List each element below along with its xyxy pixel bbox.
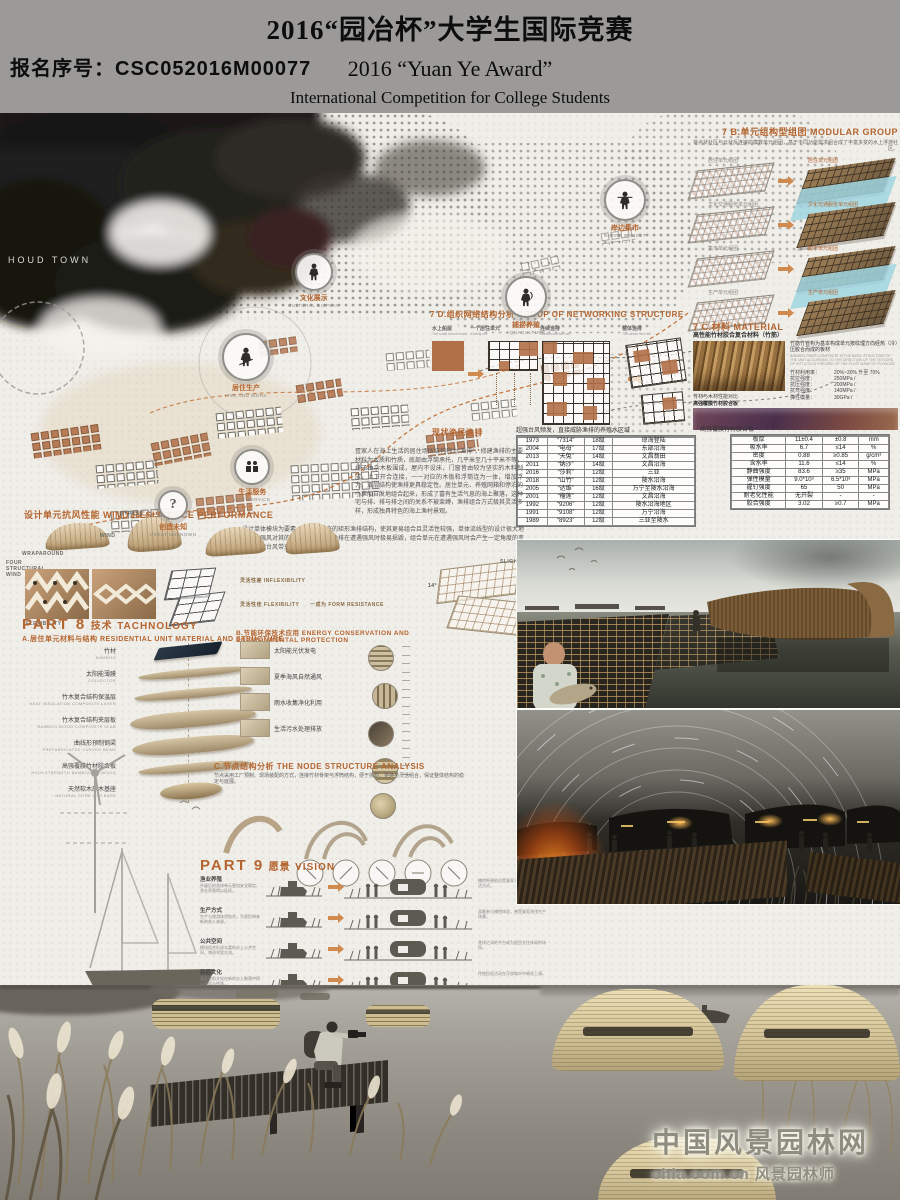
item-label-en: The small house boats — [432, 332, 467, 336]
dan-family-paragraph: 疍家人在海上生活的居住场所结构称为“渔排”，修建渔排的主要材料为木质和竹质，底部… — [355, 448, 523, 516]
cell-place: 陵水沿海地区 — [613, 502, 695, 510]
plywood-row: 密度 0.88 ≥0.85 g/cm³ — [732, 453, 889, 461]
typhoon-row: 1991 “9108” 12级 万宁沿海 — [518, 510, 695, 518]
legend-line — [496, 373, 497, 405]
cell-index: 板厚 — [732, 437, 786, 445]
floating-hut-large-2 — [734, 985, 900, 1081]
cell-name: “电母” — [547, 446, 584, 454]
label-en: BAMBOO — [16, 655, 116, 660]
weaving-photo-2 — [92, 569, 156, 619]
marker-label-en: LIVE AND WORK — [222, 393, 270, 398]
cell-wind: 12级 — [584, 518, 613, 526]
modular-row: 居住单元组团 居住单元组团 — [690, 157, 898, 200]
continuous-raft-grid — [542, 341, 610, 425]
eco-diagram — [240, 693, 270, 711]
subtitle-english: 2016 “Yuan Ye Award” — [0, 56, 900, 82]
cell-unit: MPa — [859, 469, 889, 477]
cell-unit: % — [859, 445, 889, 453]
typhoon-row: 1989 “8923” 12级 三亚至陵水 — [518, 518, 695, 526]
watermark-cn: 中国风景园林网 — [652, 1121, 900, 1161]
vision-text: 渔业养殖 升级后的渔排单元更加安全稳定，渔业养殖得以延续。 — [200, 875, 260, 893]
cell-index: 吸水率 — [732, 445, 786, 453]
cell-standard: ≤14 — [822, 445, 859, 453]
part9-code: PART 9 — [200, 857, 264, 874]
cell-place: 万宁沿海 — [613, 510, 695, 518]
bottom-photo: 中国风景园林网 chla.com.cn 风景园林师 — [0, 985, 900, 1200]
cell-value: 9.0*10³ — [786, 477, 823, 485]
cell-name: “莎莉” — [547, 470, 584, 478]
cell-index: 静曲强度 — [732, 469, 786, 477]
component-label — [402, 652, 482, 661]
module-plan-diagram — [687, 162, 774, 199]
module-label-plan: 文化交通服务单元组团 — [708, 201, 758, 208]
part9-en: VISION — [295, 862, 335, 873]
cell-standard: 6.5*10³ — [822, 477, 859, 485]
plywood-row: 含水率 11.6 ≤14 % — [732, 461, 889, 469]
marker-label-en: CULTURAL DISPLAY — [288, 303, 339, 308]
terracotta-cell — [583, 406, 597, 420]
whole-raft-grid-2 — [641, 391, 685, 425]
after-scene — [344, 906, 472, 932]
eco-diagram — [240, 641, 270, 659]
vision-label: 公共空间 — [200, 937, 260, 945]
terracotta-cell — [587, 378, 605, 390]
eco-label: 雨水收集净化利用 — [274, 698, 322, 707]
plywood-table-title: 高强覆膜竹材胶合板 — [700, 424, 898, 433]
cell-name: “山竹” — [547, 478, 584, 486]
typhoon-row: 2005 “达维” 16级 万宁至陵水沿海 — [518, 486, 695, 494]
vision-label: 生产方式 — [200, 906, 260, 914]
cell-wind: 12级 — [584, 470, 613, 478]
transform-arrow-icon — [778, 267, 788, 271]
cell-unit: mm — [859, 437, 889, 445]
terracotta-cell — [519, 342, 538, 356]
component-label — [402, 686, 482, 695]
vision-desc: 模块组合形成丰富的水上公共空间，增进邻里交流。 — [200, 945, 260, 955]
cell-wind: 14级 — [584, 454, 613, 462]
plywood-row: 吸水率 6.7 ≤14 % — [732, 445, 889, 453]
transform-arrow-icon — [778, 311, 788, 315]
component-label — [402, 677, 482, 686]
poster-board: HOUD TOWN 文化展示 CULTURAL DISPLAY 居住生产 LIV… — [0, 113, 900, 1200]
cell-standard: ≥0.7 — [822, 501, 859, 509]
competition-poster: 2016“园冶杯”大学生国际竞赛 报名序号：CSC052016M00077 20… — [0, 0, 900, 1200]
material-desc-cn: 竹筋竹管构为基本构成单元按纹理方向经热（冷）压胶合而成的板材 — [790, 341, 898, 354]
composite-hull-slab — [130, 706, 257, 733]
inflexible-label: 灵活性差 INFLEXIBILITY — [240, 577, 305, 584]
cell-value: 3.02 — [786, 501, 823, 509]
map-marker-shore-market: 岸边集市 SHORE MARKET — [604, 179, 646, 238]
component-label — [402, 669, 482, 678]
cell-place: 三亚 — [613, 470, 695, 478]
eco-diagram — [240, 719, 270, 737]
part8-b-items: 太阳能光伏发电 夏季海风自然通风 雨水收集净化利用 生活污水处理排放 — [240, 641, 390, 745]
vision-arrow-icon — [328, 885, 338, 889]
arrow-icon — [468, 372, 478, 376]
modular-rows: 居住单元组团 居住单元组团 文化交通服务单元组团 文化交通服务单元组团 集市单元… — [690, 157, 898, 332]
module-label-axon: 集市单元组团 — [808, 245, 838, 252]
section-network-structure: 7 D.组织网络结构分析 GROUP OF NETWORKING STRUCTU… — [430, 309, 698, 444]
modular-row: 文化交通服务单元组团 文化交通服务单元组团 — [690, 201, 898, 244]
module-axon-diagram — [796, 245, 896, 291]
cell-standard: ≤14 — [822, 461, 859, 469]
vision-row: 生产方式 生产与旅游体验结合，为渔民带来新的收入来源。 — [200, 906, 575, 932]
marker-ring — [234, 449, 270, 485]
material-subtitle: 高性能竹材胶合复合材料（竹筋） — [693, 333, 898, 341]
cell-wind: 14级 — [584, 462, 613, 470]
cell-wind: 12级 — [584, 502, 613, 510]
hut-window-slot — [583, 1027, 693, 1036]
marker-label-cn: 捕捞养殖 — [505, 320, 547, 330]
part8-cn: 技术 — [91, 621, 113, 632]
module-label-axon: 生产单元组团 — [808, 289, 838, 296]
cell-standard: ≥0.85 — [822, 453, 859, 461]
site-watermark: 中国风景园林网 chla.com.cn 风景园林师 — [652, 1121, 900, 1184]
cell-wind: 16级 — [584, 486, 613, 494]
label-cn: 太阳能薄膜 — [16, 669, 116, 678]
module-label-plan: 集市单元组团 — [708, 245, 738, 252]
material-text: 竹筋竹管构为基本构成单元按纹理方向经热（冷）压胶合而成的板材 BAMBOO FI… — [790, 341, 898, 401]
plywood-row: 弹性模量 9.0*10³ 6.5*10³ MPa — [732, 477, 889, 485]
form-resistance-label: 一成为 FORM RESISTANCE — [310, 601, 384, 608]
cell-name: “天兔” — [547, 454, 584, 462]
eco-label: 生活污水处理排放 — [274, 724, 322, 733]
section-title: 7 D.组织网络结构分析 GROUP OF NETWORKING STRUCTU… — [430, 309, 698, 320]
map-marker-live-work: 居住生产 LIVE AND WORK — [222, 333, 270, 398]
cell-value: 11.6 — [786, 461, 823, 469]
part8-code: PART 8 — [22, 616, 86, 633]
cell-year: 1989 — [518, 518, 548, 526]
vision-label: 渔业养殖 — [200, 875, 260, 883]
plywood-row: 静曲强度 83.6 ≥35 MPa — [732, 469, 889, 477]
marker-ring — [222, 333, 270, 381]
plywood-table-body: 板厚 11±0.4 ±0.8 mm 吸水率 6.7 ≤14 % 密度 0.88 — [732, 437, 889, 509]
bamboo-photo — [693, 341, 785, 391]
before-scene — [266, 875, 322, 899]
plywood-row: 板厚 11±0.4 ±0.8 mm — [732, 437, 889, 445]
typhoon-row: 2001 “榴莲” 12级 文昌沿海 — [518, 494, 695, 502]
cell-place: 文昌沿海 — [613, 462, 695, 470]
cell-unit: % — [859, 461, 889, 469]
marker-label-en: SHORE MARKET — [604, 233, 646, 238]
marker-label-en: AQUACULTURE — [505, 330, 547, 335]
cell-standard: 50 — [822, 485, 859, 493]
day-rendering — [517, 540, 900, 708]
material-props: 竹材利用率： 20%~30% 升至 70% 抗拉强度： 250MPa / 抗压强… — [790, 370, 898, 401]
typhoon-row: 1992 “9206” 12级 陵水沿海地区 — [518, 502, 695, 510]
label-cn: 竹木复合结构夹层板 — [16, 715, 116, 724]
cell-value: 11±0.4 — [786, 437, 823, 445]
material-desc-en: BAMBOO FIBER COMPOSITE IS THE BASIC STRU… — [790, 354, 898, 367]
cell-unit: MPa — [859, 477, 889, 485]
cell-index: 密度 — [732, 453, 786, 461]
terracotta-cell — [573, 352, 593, 364]
module-plan-diagram — [687, 250, 774, 287]
cell-place: 万宁至陵水沿海 — [613, 486, 695, 494]
page-title: 2016“园冶杯”大学生国际竞赛 — [0, 8, 900, 47]
map-marker-aquaculture: 捕捞养殖 AQUACULTURE — [505, 276, 547, 335]
material-prop-row: 弹性模量： 30GPa / — [790, 395, 898, 401]
module-label-plan: 居住单元组团 — [708, 157, 738, 164]
eco-label: 夏季海风自然通风 — [274, 672, 322, 681]
eco-feature: 太阳能光伏发电 — [240, 641, 390, 659]
cell-index: 弹性模量 — [732, 477, 786, 485]
transform-arrow-icon — [778, 179, 788, 183]
material-note: 竹材与木材性能对比 — [693, 394, 738, 400]
before-scene — [266, 906, 322, 930]
label-en: HEAT INSULATION COMPOSITE LAYER — [16, 701, 116, 706]
item-label-en: The whole fish raft — [622, 332, 651, 336]
module-design-paragraph: 设计单体模块为要素，改变了原来的矩形渔排结构，使其更易组合且灵活性较强，单体流线… — [242, 526, 524, 553]
label-en: COLLECTOR — [16, 678, 116, 683]
cell-name: “纳沙” — [547, 462, 584, 470]
floating-hut-large-1 — [552, 989, 724, 1071]
component-label — [402, 737, 482, 746]
watermark-url: chla.com.cn 风景园林师 — [652, 1163, 900, 1184]
eco-feature: 雨水收集净化利用 — [240, 693, 390, 711]
marker-label-cn: 创造未知 — [150, 522, 196, 532]
cell-name: “9206” — [547, 502, 584, 510]
board-label: 高强覆膜竹材胶合板 — [693, 401, 738, 407]
part8-right-labels — [402, 643, 482, 779]
marker-label-en: CREAT UNKNOWN — [150, 532, 196, 537]
cell-unit: - — [859, 493, 889, 501]
legend-line — [514, 373, 515, 405]
vision-row: 公共空间 模块组合形成丰富的水上公共空间，增进邻里交流。 — [200, 937, 575, 963]
vision-desc-right: 渔排之间的平台成为居民交往休闲的场所。 — [478, 937, 548, 950]
cell-place: 东部沿海 — [613, 446, 695, 454]
question-mark-icon: ? — [170, 497, 177, 513]
after-scene — [344, 875, 472, 901]
typhoon-row: 2011 “纳沙” 14级 文昌沿海 — [518, 462, 695, 470]
lantern-glow — [757, 814, 783, 828]
person-icon — [307, 263, 321, 281]
vision-text: 公共空间 模块组合形成丰富的水上公共空间，增进邻里交流。 — [200, 937, 260, 955]
section-desc: 将点状社区与云状反连接的模数单元组团，基于不同功能需求组合成了丰富多变的水上浮游… — [690, 140, 898, 153]
typhoon-row: 2004 “电母” 17级 东部沿海 — [518, 446, 695, 454]
item-label-en: A living cell — [470, 332, 487, 336]
wraparound-label: WRAPAROUND — [22, 551, 64, 557]
part8-en: TACHNOLOGY — [117, 621, 197, 632]
marker-label-cn: 居住生产 — [222, 383, 270, 393]
plywood-row: 握钉强度 65 50 MPa — [732, 485, 889, 493]
person-carrying-icon — [617, 191, 633, 210]
part8-c-title: C 节点结构分析 THE NODE STRUCTURE ANALYSIS — [214, 761, 425, 772]
subtitle-line2: International Competition for College St… — [0, 88, 900, 108]
material-label: 太阳能薄膜 COLLECTOR — [16, 669, 116, 683]
module-axon-diagram — [796, 201, 896, 247]
eco-feature: 生活污水处理排放 — [240, 719, 390, 737]
membrane-slab — [138, 664, 248, 682]
terracotta-cell — [661, 359, 679, 375]
label-en: BAMBOO-WOOD COMPOSITE SLAB — [16, 724, 116, 729]
lantern-glow — [817, 812, 843, 826]
angle-label: 14° — [428, 583, 437, 589]
plywood-table-section: 高强覆膜竹材胶合板 板厚 11±0.4 ±0.8 mm 吸水率 6.7 ≤14 — [700, 424, 898, 510]
legend-line — [530, 373, 531, 405]
map-marker-life-service: 生活服务 LIFE SERVICE — [234, 449, 270, 502]
wind-label: WIND — [100, 533, 115, 539]
section-material: 7 C.材料 MATERIAL 高性能竹材胶合复合材料（竹筋） 竹筋竹管构为基本… — [693, 320, 898, 341]
cell-place: 陵水沿海 — [613, 478, 695, 486]
cell-unit: g/cm³ — [859, 453, 889, 461]
module-label-axon: 居住单元组团 — [808, 157, 838, 164]
header: 2016“园冶杯”大学生国际竞赛 报名序号：CSC052016M00077 20… — [0, 0, 900, 113]
vision-desc-right: 游客参与捕捞体验，感受疍家渔排生产场景。 — [478, 906, 548, 919]
plywood-row: 胶合强度 3.02 ≥0.7 MPa — [732, 501, 889, 509]
cell-standard: - — [822, 493, 859, 501]
component-label — [402, 660, 482, 669]
terracotta-cell — [543, 342, 557, 354]
marker-ring — [505, 276, 547, 318]
diamond-pattern — [92, 569, 156, 619]
vision-desc-right: 传统民俗活动在浮游城市中继续上演。 — [478, 968, 548, 976]
vision-arrow-icon — [328, 947, 338, 951]
prop-key: 弹性模量： — [790, 395, 834, 401]
module-plan-diagram — [687, 206, 774, 243]
cell-value: 83.6 — [786, 469, 823, 477]
label-cn: 竹材 — [16, 646, 116, 655]
cell-name: “8923” — [547, 518, 584, 526]
component-label — [402, 703, 482, 712]
vision-arrow-icon — [328, 978, 338, 982]
cell-value: 65 — [786, 485, 823, 493]
modular-row: 集市单元组团 集市单元组团 — [690, 245, 898, 288]
cell-index: 耐老化性能 — [732, 493, 786, 501]
insulation-slab — [134, 684, 252, 703]
vision-desc: 生产与旅游体验结合，为渔民带来新的收入来源。 — [200, 914, 260, 924]
material-label: 竹材 BAMBOO — [16, 646, 116, 660]
marker-label-cn: 岸边集市 — [604, 223, 646, 233]
houseboat-block — [432, 341, 464, 371]
plywood-table: 板厚 11±0.4 ±0.8 mm 吸水率 6.7 ≤14 % 密度 0.88 — [730, 434, 890, 510]
material-label: 竹木复合结构夹层板 BAMBOO-WOOD COMPOSITE SLAB — [16, 715, 116, 729]
marker-label-cn: 文化展示 — [288, 293, 339, 303]
after-scene — [344, 937, 472, 963]
terracotta-cell — [662, 397, 677, 410]
typhoon-row: 2016 “莎莉” 12级 三亚 — [518, 470, 695, 478]
cell-wind: 12级 — [584, 478, 613, 486]
part9-title: PART 9 愿景 VISION — [200, 857, 335, 875]
hut-window-slot — [764, 1029, 870, 1038]
part9-cn: 愿景 — [269, 862, 291, 873]
cell-standard: ≥35 — [822, 469, 859, 477]
night-rendering — [517, 710, 900, 904]
part8-c-desc: 节点采用工厂预制、现场装配的方式，连接竹材骨架与浮筒结构，便于拆卸、更换与灵活组… — [214, 773, 464, 786]
cell-wind: 12级 — [584, 494, 613, 502]
cell-unit: MPa — [859, 501, 889, 509]
day-overlay — [517, 540, 900, 708]
people-icon — [244, 460, 260, 474]
cell-place: 文昌沿海 — [613, 494, 695, 502]
cell-value: 0.88 — [786, 453, 823, 461]
marker-ring: ? — [158, 490, 188, 520]
vision-arrow-icon — [328, 916, 338, 920]
typhoon-row: 2013 “天兔” 14级 文昌翁田 — [518, 454, 695, 462]
map-town-label: HOUD TOWN — [8, 255, 91, 265]
cell-name: “榴莲” — [547, 494, 584, 502]
cell-place: 文昌翁田 — [613, 454, 695, 462]
cell-index: 胶合强度 — [732, 501, 786, 509]
component-label — [402, 643, 482, 652]
terracotta-cell — [499, 361, 509, 371]
terracotta-cell — [633, 349, 651, 363]
marker-label-cn: 生活服务 — [234, 487, 270, 497]
typhoon-table: 1973 “7314” 18级 琼海登陆 2004 “电母” 17级 东部沿海 … — [516, 435, 696, 527]
typhoon-row: 2018 “山竹” 12级 陵水沿海 — [518, 478, 695, 486]
marker-label-en: LIFE SERVICE — [234, 497, 270, 502]
cell-name: “9108” — [547, 510, 584, 518]
terracotta-cell — [553, 372, 567, 386]
vision-text: 民俗文化 疍家民俗文化在新的水上聚落中得以延续与传承。 — [200, 968, 260, 986]
cell-value: 6.7 — [786, 445, 823, 453]
material-label: 竹木复合结构保温层 HEAT INSULATION COMPOSITE LAYE… — [16, 692, 116, 706]
cell-wind: 12级 — [584, 510, 613, 518]
cell-value: 无开裂 — [786, 493, 823, 501]
person-fishing-icon — [237, 347, 255, 367]
lantern-glow — [667, 816, 693, 830]
component-label — [402, 711, 482, 720]
vision-label: 民俗文化 — [200, 968, 260, 976]
typhoon-table-body: 1973 “7314” 18级 琼海登陆 2004 “电母” 17级 东部沿海 … — [518, 438, 695, 526]
cell-name: “达维” — [547, 486, 584, 494]
section-title: 7 B.单元组构型组团 MODULAR GROUP — [690, 125, 898, 138]
component-label — [402, 720, 482, 729]
cell-index: 握钉强度 — [732, 485, 786, 493]
cell-standard: ±0.8 — [822, 437, 859, 445]
weaving-photo-1 — [25, 569, 89, 619]
living-cell-grid — [488, 341, 538, 371]
cell-place: 三亚至陵水 — [613, 518, 695, 526]
marker-ring — [604, 179, 646, 221]
person-fishing-icon — [518, 288, 534, 307]
component-label — [402, 745, 482, 754]
component-label — [402, 694, 482, 703]
module-label-plan: 生产单元组团 — [708, 289, 738, 296]
vision-text: 生产方式 生产与旅游体验结合，为渔民带来新的收入来源。 — [200, 906, 260, 924]
map-marker-create-unknown: ? 创造未知 CREAT UNKNOWN — [150, 490, 196, 537]
prop-value: 30GPa / — [834, 395, 852, 401]
plywood-row: 耐老化性能 无开裂 - - — [732, 493, 889, 501]
section-modular-group: 7 B.单元组构型组团 MODULAR GROUP 将点状社区与云状反连接的模数… — [690, 125, 898, 332]
flexible-label: 灵活性佳 FLEXIBILITY — [240, 601, 299, 608]
map-marker-cultural-display: 文化展示 CULTURAL DISPLAY — [288, 253, 339, 308]
before-scene — [266, 937, 322, 961]
module-axon-diagram — [796, 157, 896, 203]
label-cn: 竹木复合结构保温层 — [16, 692, 116, 701]
whole-raft-grid-1 — [625, 337, 687, 388]
terracotta-cell — [547, 402, 567, 416]
cell-wind: 17级 — [584, 446, 613, 454]
component-label — [402, 728, 482, 737]
section-title: 7 C.材料 MATERIAL — [693, 320, 898, 333]
transform-arrow-icon — [778, 223, 788, 227]
cell-index: 含水率 — [732, 461, 786, 469]
module-label-axon: 文化交通服务单元组团 — [808, 201, 858, 208]
eco-feature: 夏季海风自然通风 — [240, 667, 390, 685]
vision-desc: 升级后的渔排单元更加安全稳定，渔业养殖得以延续。 — [200, 883, 260, 893]
part8-title: PART 8 技术 TACHNOLOGY — [22, 616, 198, 634]
cell-unit: MPa — [859, 485, 889, 493]
eco-diagram — [240, 667, 270, 685]
marker-ring — [295, 253, 333, 291]
bypass-label: BYPASS — [120, 511, 143, 517]
eco-label: 太阳能光伏发电 — [274, 646, 316, 655]
raft-caption: 现状渔民渔排 — [432, 427, 483, 438]
zigzag-pattern — [25, 569, 89, 619]
